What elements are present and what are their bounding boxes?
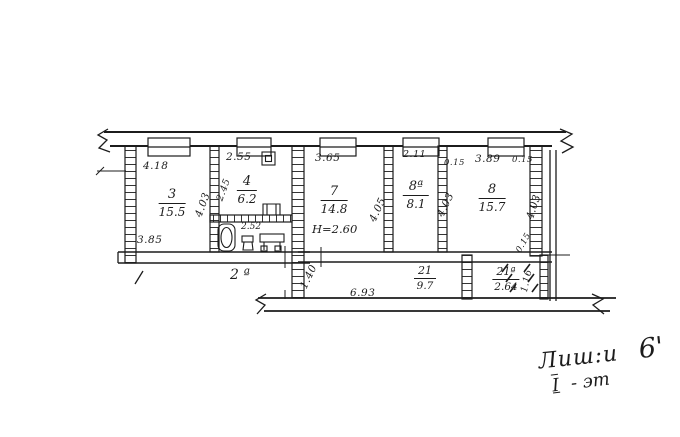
dim-top-r8: 3.89 (475, 154, 500, 165)
room-7-ceiling-height: H=2.60 (312, 224, 357, 236)
dim-top-r7: 3.65 (315, 153, 340, 164)
room-21a-label: 21ª 2.64 (492, 266, 519, 293)
room-7-number: 7 (321, 185, 348, 201)
floor-numeral: I (551, 375, 561, 397)
bathtub-icon (218, 224, 235, 251)
bathroom-area: 2.52 (241, 223, 261, 232)
dim-top-r8-right: 0.15 (512, 156, 533, 165)
room-4-area: 6.2 (237, 191, 257, 206)
dim-top-r8a: 2.11 (403, 150, 426, 160)
room-8a-number: 8ª (403, 180, 429, 196)
room-21a-number: 21ª (492, 266, 519, 280)
room-3-area: 15.5 (159, 204, 186, 219)
room-4-number: 4 (237, 175, 257, 191)
dim-corridor-length: 6.93 (350, 288, 375, 299)
room-4-label: 4 6.2 (237, 175, 257, 205)
dim-bottom-r3: 3.85 (137, 235, 162, 246)
bottom-walls (118, 246, 552, 268)
room-21-label: 21 9.7 (414, 265, 436, 292)
room-3-label: 3 15.5 (159, 188, 186, 218)
floorplan-page: 3 15.5 4 6.2 7 14.8 H=2.60 8ª 8.1 8 15.7… (0, 0, 680, 437)
room-21a-area: 2.64 (492, 280, 519, 293)
note-number: 6' (637, 332, 665, 365)
room-8a-label: 8ª 8.1 (403, 180, 429, 210)
room-8-label: 8 15.7 (479, 183, 506, 213)
room-8-number: 8 (479, 183, 506, 199)
room-7-label: 7 14.8 (321, 185, 348, 215)
annex-label: 2 ª (230, 268, 250, 282)
room-3-number: 3 (159, 188, 186, 204)
sink-icon (260, 234, 284, 251)
room-7-area: 14.8 (321, 201, 348, 216)
stove-icon (263, 204, 280, 215)
toilet-icon (242, 236, 253, 250)
dim-top-r4: 2.55 (226, 152, 251, 163)
lower-exterior-wall (256, 290, 616, 314)
dim-top-r8-left: 0.15 (444, 159, 465, 168)
room-21-area: 9.7 (414, 279, 436, 292)
room-8-area: 15.7 (479, 199, 506, 214)
room-21-number: 21 (414, 265, 436, 279)
room-8a-area: 8.1 (403, 196, 429, 211)
dim-top-r3: 4.18 (143, 161, 168, 172)
